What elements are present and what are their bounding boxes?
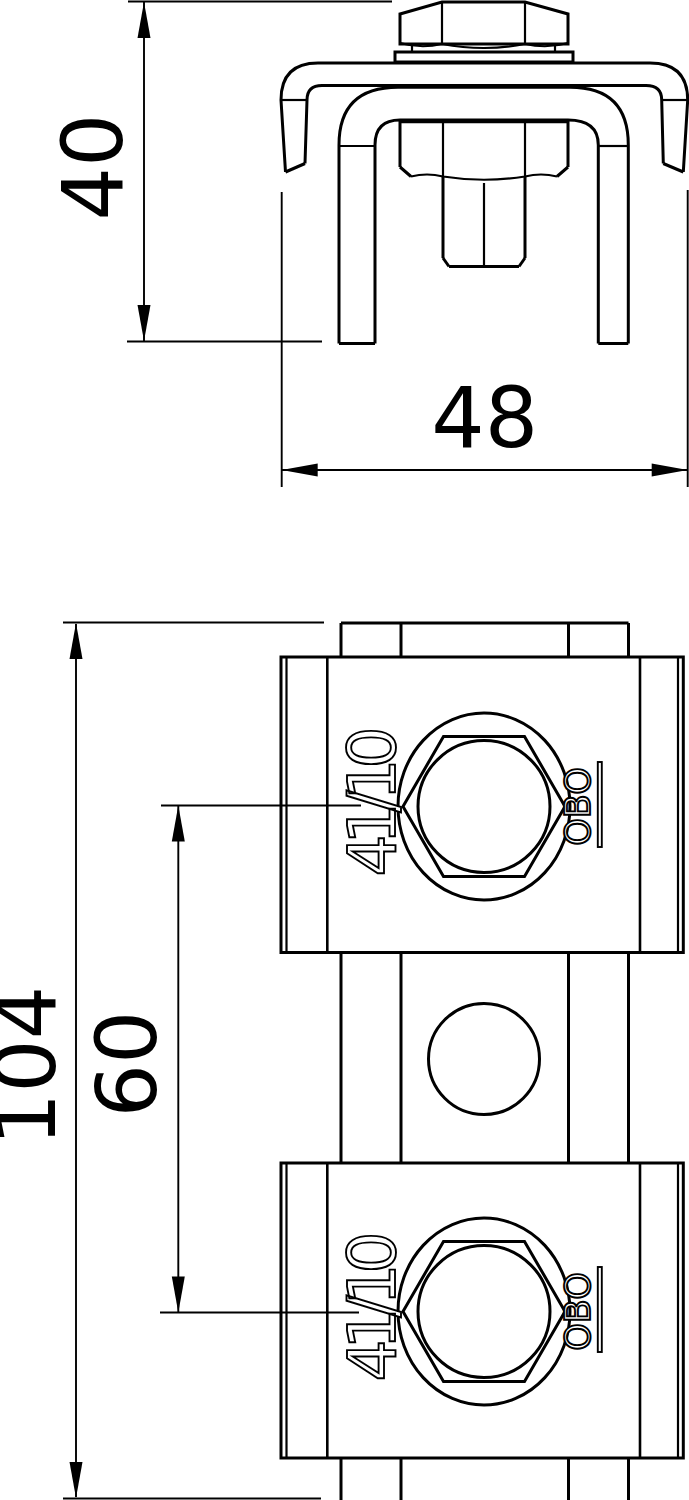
dim-label-60: 60 <box>78 1011 176 1118</box>
drawing-canvas: 40 48 <box>0 0 689 1500</box>
plan-dimensions: 104 60 <box>0 623 324 1499</box>
arrow-up-icon <box>172 806 185 842</box>
arrow-right-icon <box>652 464 688 477</box>
arrow-left-icon <box>282 464 318 477</box>
arrow-down-icon <box>138 305 151 341</box>
arrow-down-icon <box>172 1277 185 1313</box>
plan-view: 41/10 OBO 41/10 OBO <box>160 623 683 1500</box>
upper-marking-41-10: 41/10 <box>334 730 411 876</box>
front-dimensions: 40 48 <box>44 2 688 488</box>
dim-60: 60 <box>78 806 185 1313</box>
upper-obo-underline <box>598 762 602 847</box>
lower-obo-underline <box>598 1267 602 1352</box>
bolt-shank <box>443 177 525 267</box>
dim-label-40: 40 <box>44 114 142 221</box>
lower-obo-logo: OBO <box>558 1272 598 1351</box>
lower-marking-41-10: 41/10 <box>334 1235 411 1381</box>
dim-label-48: 48 <box>431 369 538 467</box>
front-view <box>281 2 688 344</box>
washer <box>395 52 573 62</box>
arrow-up-icon <box>138 2 151 38</box>
upper-bolt-plan <box>398 713 570 900</box>
technical-drawing-page: 40 48 <box>0 0 689 1500</box>
center-hole <box>429 1004 540 1115</box>
arrow-up-icon <box>70 623 83 659</box>
bolt-head-side <box>400 122 568 180</box>
lower-bolt-plan <box>398 1218 570 1405</box>
hex-nut <box>400 2 568 52</box>
upper-obo-logo: OBO <box>558 767 598 846</box>
dim-label-104: 104 <box>0 986 75 1146</box>
arrow-down-icon <box>70 1462 83 1498</box>
